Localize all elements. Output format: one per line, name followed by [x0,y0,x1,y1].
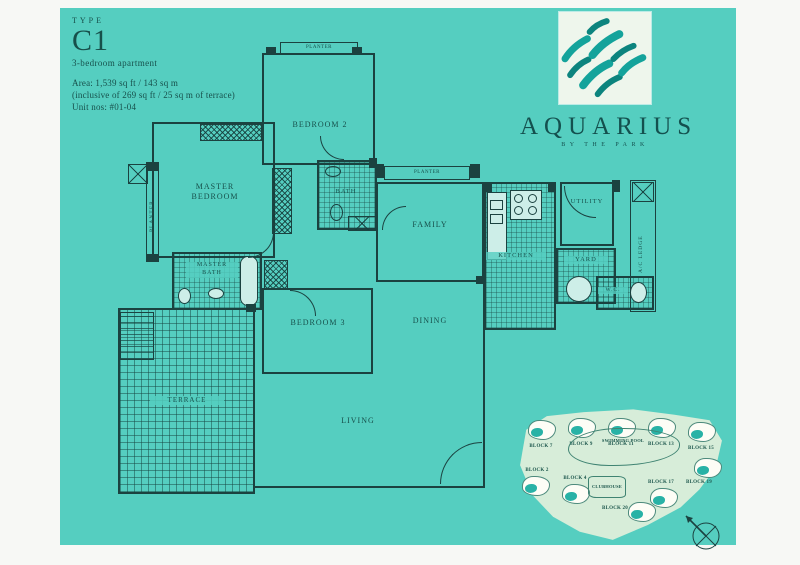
master-bedroom-label: MASTER BEDROOM [178,182,252,203]
unit-area: Area: 1,539 sq ft / 143 sq m [72,77,282,89]
planter-family-label: PLANTER [384,170,470,177]
ac-ledge-unit [632,182,654,202]
bathtub [240,256,258,306]
stove-burner-1 [514,194,523,203]
site-block-building [522,476,550,496]
column [476,276,484,284]
bath-sink [325,166,341,177]
dining-label: DINING [398,316,462,326]
unit-type-code: C1 [72,25,282,57]
room-bedroom2 [262,53,375,165]
yard-label: YARD [564,256,608,264]
site-block-building [694,458,722,478]
block-label: BLOCK 15 [684,446,718,451]
column [146,162,159,170]
bedroom3-label: BEDROOM 3 [280,318,356,328]
site-block-building [528,420,556,440]
column [266,47,276,55]
block-label: BLOCK 17 [644,480,678,485]
column [484,182,492,192]
master-bath-toilet [178,288,191,304]
room-family [376,182,484,282]
planter-left-label: PLANTER [149,186,155,246]
planter-bedroom2-label: PLANTER [280,45,358,52]
column [146,254,159,262]
stove-burner-3 [514,206,523,215]
living-label: LIVING [326,416,390,426]
column [352,47,362,55]
stove-burner-4 [528,206,537,215]
stove-burner-2 [528,194,537,203]
ac-unit-box [128,164,148,184]
room-bedroom3 [262,288,373,374]
block-label: BLOCK 2 [520,468,554,473]
bedroom2-label: BEDROOM 2 [282,120,358,130]
walkin-wardrobe [272,168,292,234]
column [246,304,256,312]
logo-tagline: BY THE PARK [520,142,690,148]
aquarius-logo: AQUARIUS BY THE PARK [520,12,690,148]
bath-closet [348,216,376,231]
unit-subtitle: 3-bedroom apartment [72,58,282,68]
unit-info-block: TYPE C1 3-bedroom apartment Area: 1,539 … [72,16,282,113]
bath-label: BATH [320,188,372,196]
column [470,164,480,178]
column [612,180,620,192]
master-bath-label: MASTER BATH [186,262,238,278]
terrace-steps [120,312,154,360]
swimming-pool-label: SWIMMING POOL [588,438,658,443]
site-block-building [688,422,716,442]
site-block-building [650,488,678,508]
clubhouse-label: CLUBHOUSE [590,484,624,489]
brush-stroke-waves-icon [559,12,651,104]
block-label: BLOCK 7 [524,444,558,449]
kitchen-sink-2 [490,214,503,224]
family-label: FAMILY [398,220,462,230]
ac-ledge-label: A/C LEDGE [638,214,644,294]
master-wardrobe [200,124,262,141]
kitchen-sink-1 [490,200,503,210]
block-label: BLOCK 19 [682,480,716,485]
column [376,164,384,178]
block-label: BLOCK 4 [558,476,592,481]
site-plan: BLOCK 7 BLOCK 9 BLOCK 11 BLOCK 13 BLOCK … [516,402,742,554]
wc-label: W.C. [598,287,628,294]
column [548,182,556,192]
unit-area-note: (inclusive of 269 sq ft / 25 sq m of ter… [72,89,282,101]
bath-toilet [330,204,343,221]
unit-numbers: Unit nos: #01-04 [72,101,282,113]
washing-machine [566,276,592,302]
terrace-label: TERRACE [150,396,224,405]
block-label: BLOCK 20 [598,506,632,511]
site-block-building [628,502,656,522]
master-bath-sink [208,288,224,299]
site-block-building [562,484,590,504]
kitchen-label: KITCHEN [486,252,546,260]
compass-rose-icon [682,512,724,554]
logo-name: AQUARIUS [520,113,690,141]
